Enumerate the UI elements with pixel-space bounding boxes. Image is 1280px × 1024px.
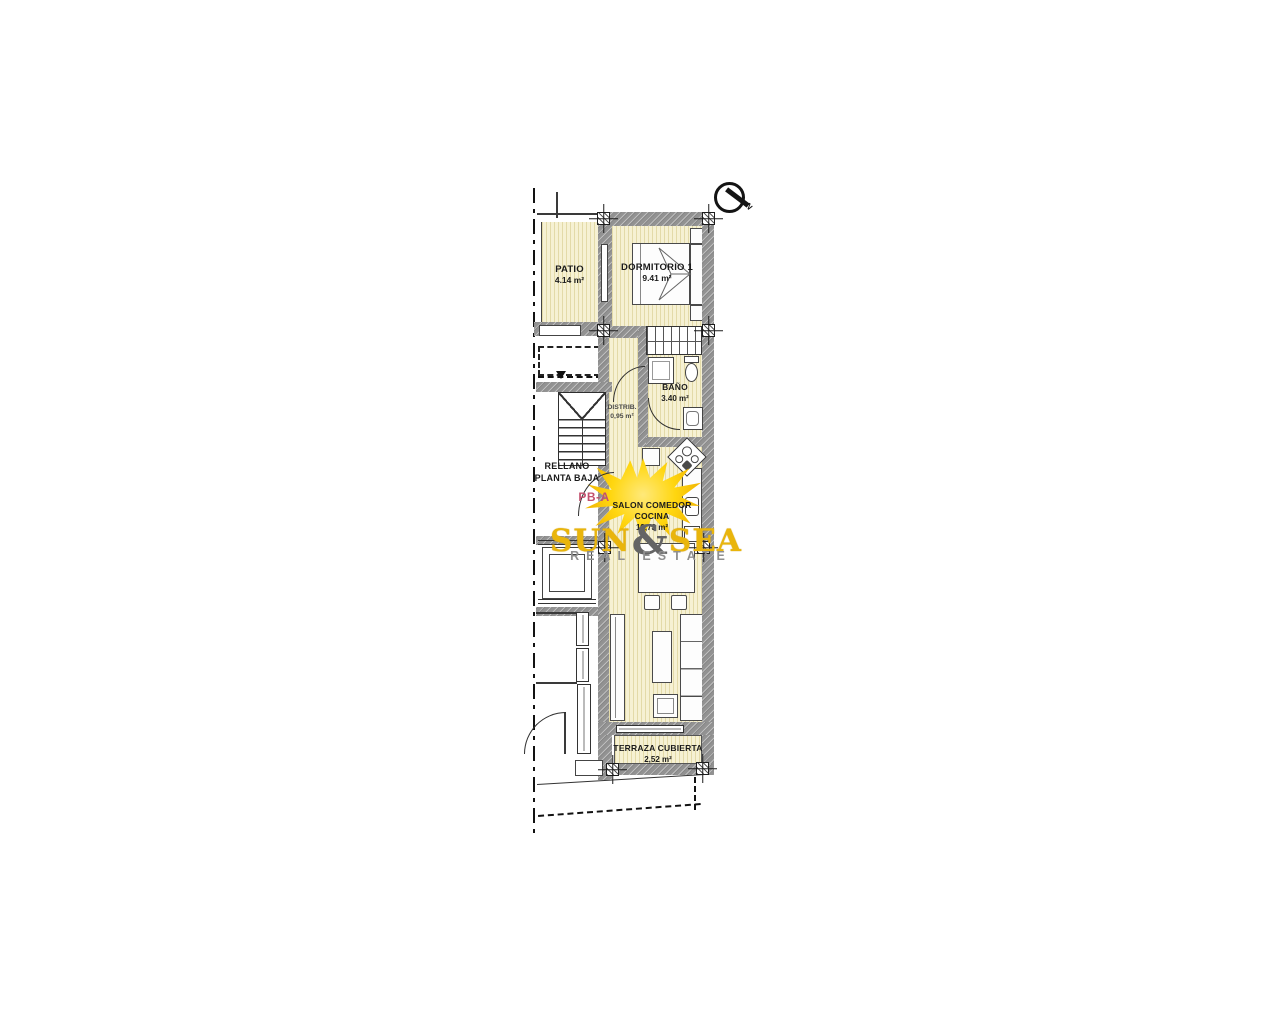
room-label-patio: PATIO 4.14 m²: [541, 264, 598, 286]
boundary-dashed-line: [694, 777, 696, 810]
patio-sill-window: [539, 325, 581, 336]
wall-segment: [536, 382, 612, 392]
neighbour-dashed-outline: [538, 346, 600, 376]
coffee-table: [652, 631, 672, 683]
wall-segment: [702, 212, 714, 774]
facade-window: [576, 612, 589, 646]
stair-break-line: [559, 393, 582, 419]
brand-tagline: REAL ESTATE: [560, 549, 742, 563]
column-marker: [597, 324, 610, 337]
stairs: [558, 392, 606, 466]
terrace-sliding-door: [616, 725, 684, 733]
room-label-distribuidor: DISTRIB. 0,95 m²: [602, 403, 642, 421]
room-label-terraza: TERRAZA CUBIERTA 2,52 m²: [612, 743, 704, 765]
tv-cabinet: [610, 614, 625, 721]
sofa: [680, 614, 704, 697]
facade-door-window: [577, 684, 591, 754]
facade-window: [576, 648, 589, 682]
boundary-dashed-line: [538, 803, 701, 817]
toilet-tank: [684, 356, 699, 363]
facade-line: [536, 612, 576, 614]
shower-tray: [652, 361, 670, 380]
terrace-edge-line: [537, 774, 707, 785]
room-label-dormitorio: DORMITORIO 1 9.41 m²: [612, 262, 702, 284]
column-marker: [702, 324, 715, 337]
elevator-rail: [538, 599, 596, 604]
toilet-bowl: [685, 363, 698, 382]
unit-label: PB-A: [570, 490, 618, 504]
neighbour-dashed-line: [538, 376, 602, 378]
facade-line: [536, 682, 577, 684]
column-marker: [597, 212, 610, 225]
dining-chair: [671, 595, 687, 610]
bath-sink-basin: [686, 411, 699, 426]
stair-divider: [582, 419, 583, 465]
ottoman: [653, 694, 678, 718]
column-marker: [702, 212, 715, 225]
landing-label: RELLANO PLANTA BAJA: [532, 461, 602, 484]
room-label-bano: BAÑO 3.40 m²: [648, 382, 702, 404]
patio-window: [601, 244, 608, 302]
entry-door-swing-arc: [524, 712, 566, 754]
patio-top-line: [537, 213, 600, 215]
dining-chair: [644, 595, 660, 610]
